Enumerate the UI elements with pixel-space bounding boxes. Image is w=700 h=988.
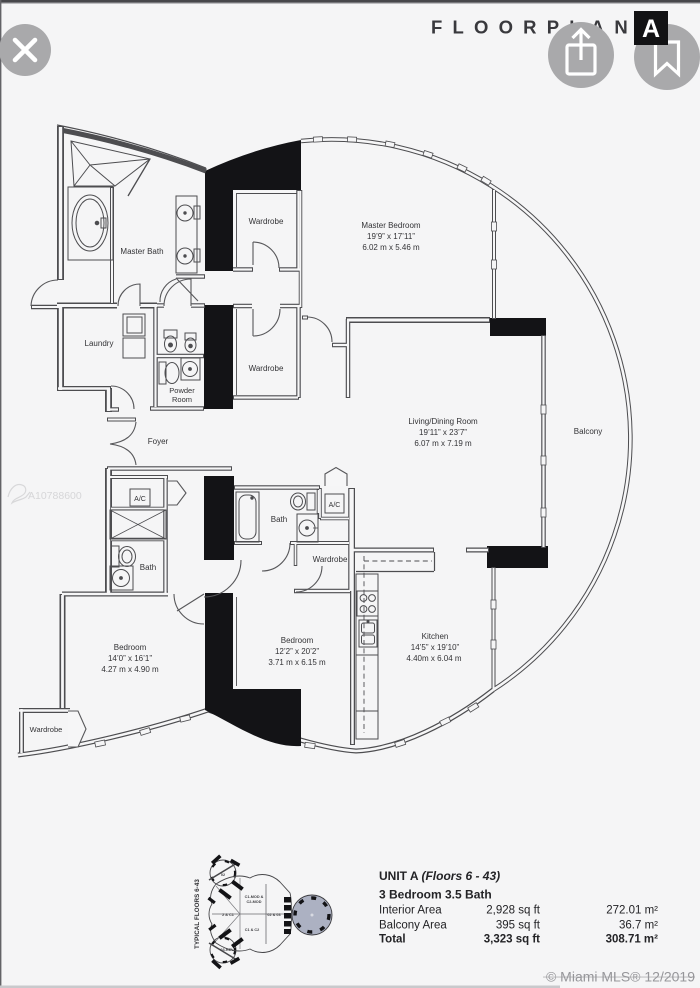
svg-text:395 sq ft: 395 sq ft — [496, 920, 541, 932]
svg-text:Bath: Bath — [271, 515, 287, 524]
svg-text:3 Bedroom 3.5 Bath: 3 Bedroom 3.5 Bath — [379, 888, 492, 902]
svg-text:TYPICAL FLOORS 6-43: TYPICAL FLOORS 6-43 — [194, 879, 201, 949]
svg-text:FLOORPLAN: FLOORPLAN — [431, 17, 638, 38]
svg-text:02 & 03: 02 & 03 — [267, 913, 280, 917]
svg-text:A/C: A/C — [134, 496, 146, 503]
svg-text:C1 & C2: C1 & C2 — [245, 928, 260, 932]
svg-text:2 & C1: 2 & C1 — [222, 913, 234, 917]
svg-text:Bath: Bath — [140, 563, 156, 572]
svg-text:Wardrobe: Wardrobe — [249, 217, 284, 226]
svg-text:UNIT A (Floors 6 - 43): UNIT A (Floors 6 - 43) — [379, 869, 500, 883]
svg-text:6.07 m x 7.19 m: 6.07 m x 7.19 m — [414, 439, 472, 448]
svg-text:2,928 sq ft: 2,928 sq ft — [486, 905, 541, 917]
svg-text:Master Bath: Master Bath — [120, 247, 163, 256]
svg-text:3,323 sq ft: 3,323 sq ft — [484, 934, 540, 946]
svg-text:C1-MOD &: C1-MOD & — [245, 895, 264, 899]
svg-text:Total: Total — [379, 934, 406, 946]
svg-text:02: 02 — [221, 873, 225, 877]
svg-text:03-REV: 03-REV — [220, 948, 234, 952]
svg-text:A/C: A/C — [329, 502, 341, 509]
svg-text:Laundry: Laundry — [85, 339, 114, 348]
svg-text:Kitchen: Kitchen — [422, 632, 449, 641]
svg-text:14’5” x 19’10”: 14’5” x 19’10” — [411, 643, 460, 652]
svg-text:Powder: Powder — [169, 386, 195, 395]
svg-text:Bedroom: Bedroom — [114, 643, 147, 652]
svg-text:19’9” x 17’11”: 19’9” x 17’11” — [367, 232, 415, 241]
svg-text:3.71 m x 6.15 m: 3.71 m x 6.15 m — [268, 658, 326, 667]
svg-text:Wardrobe: Wardrobe — [249, 364, 284, 373]
svg-text:36.7 m²: 36.7 m² — [619, 920, 658, 932]
svg-text:19’11” x 23’7”: 19’11” x 23’7” — [419, 428, 467, 437]
svg-text:Living/Dining Room: Living/Dining Room — [408, 417, 478, 426]
svg-text:© Miami MLS® 12/2019: © Miami MLS® 12/2019 — [546, 969, 695, 985]
svg-text:Room: Room — [172, 395, 192, 404]
svg-text:12’2” x 20’2”: 12’2” x 20’2” — [275, 647, 319, 656]
svg-text:Interior Area: Interior Area — [379, 905, 442, 917]
svg-text:C2-MOD: C2-MOD — [247, 900, 262, 904]
svg-text:272.01 m²: 272.01 m² — [606, 905, 658, 917]
svg-text:Foyer: Foyer — [148, 437, 169, 446]
svg-text:Balcony: Balcony — [574, 427, 602, 436]
svg-text:Wardrobe: Wardrobe — [313, 555, 348, 564]
svg-text:14’0” x 16’1”: 14’0” x 16’1” — [108, 654, 152, 663]
svg-text:4.27 m x 4.90 m: 4.27 m x 4.90 m — [101, 665, 159, 674]
svg-text:6.02 m x 5.46 m: 6.02 m x 5.46 m — [362, 243, 420, 252]
svg-text:A10788600: A10788600 — [28, 490, 82, 502]
svg-text:Wardrobe: Wardrobe — [30, 725, 63, 734]
svg-text:4.40m x 6.04 m: 4.40m x 6.04 m — [406, 654, 461, 663]
svg-text:Balcony Area: Balcony Area — [379, 920, 447, 932]
svg-text:308.71 m²: 308.71 m² — [606, 934, 659, 946]
svg-text:Master Bedroom: Master Bedroom — [361, 221, 420, 230]
svg-text:Bedroom: Bedroom — [281, 636, 314, 645]
svg-text:A: A — [642, 15, 660, 43]
